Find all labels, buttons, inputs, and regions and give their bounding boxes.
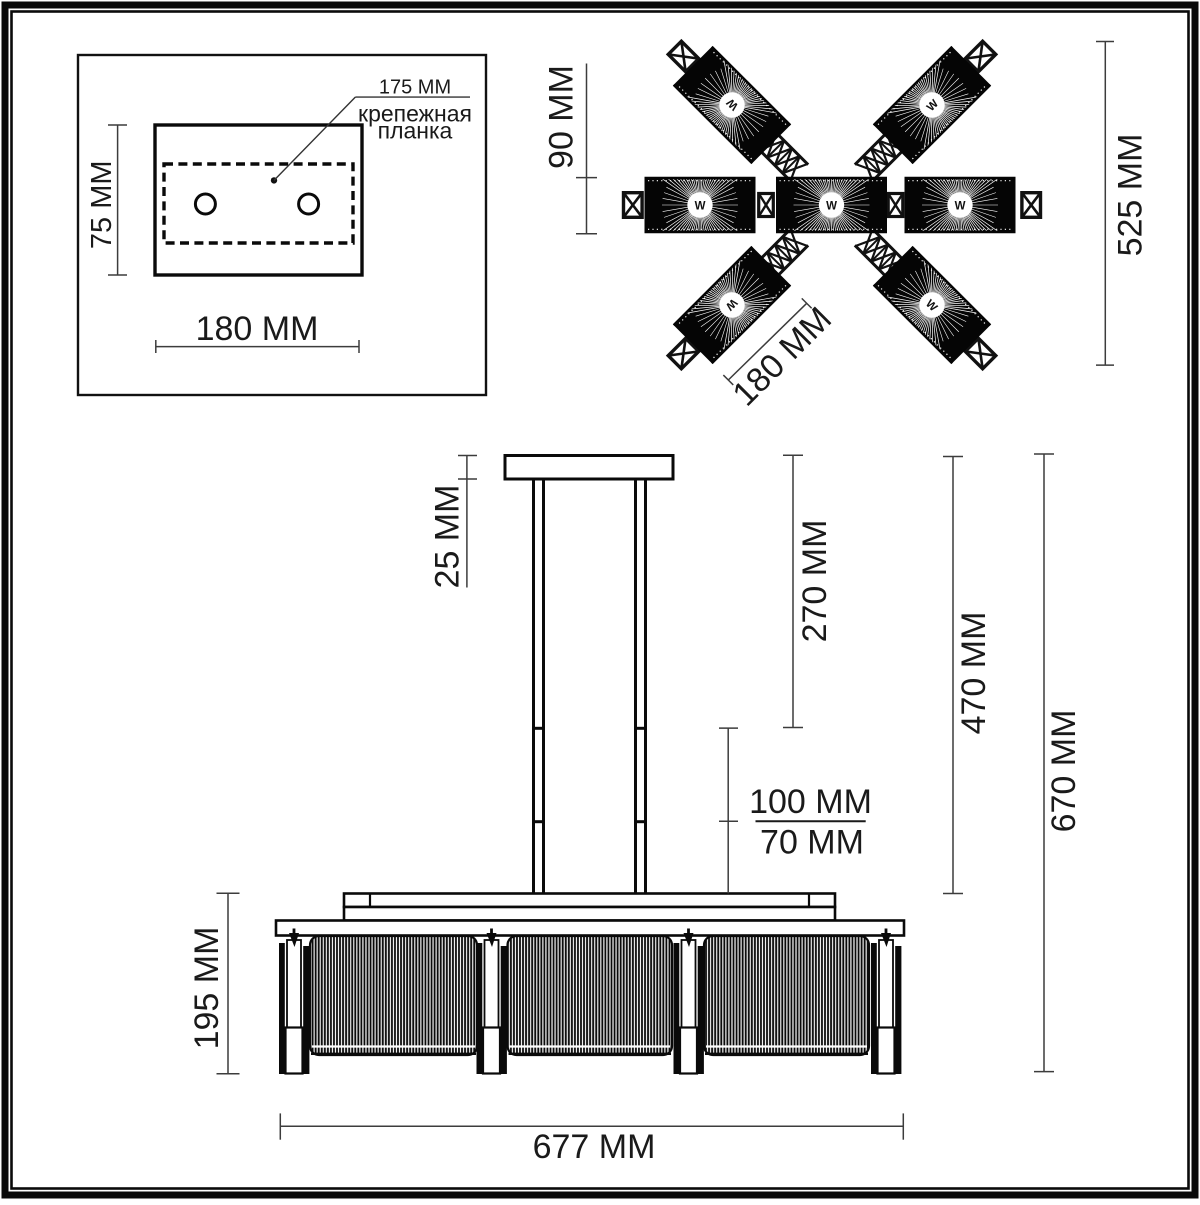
svg-text:195 ММ: 195 ММ	[188, 927, 226, 1050]
svg-text:525 ММ: 525 ММ	[1112, 134, 1150, 257]
svg-text:180 ММ: 180 ММ	[196, 310, 319, 348]
svg-text:270 ММ: 270 ММ	[796, 520, 834, 643]
svg-text:70 ММ: 70 ММ	[760, 824, 864, 862]
svg-text:470 ММ: 470 ММ	[955, 612, 993, 735]
svg-text:90 ММ: 90 ММ	[543, 65, 581, 169]
svg-text:75 ММ: 75 ММ	[86, 160, 118, 249]
svg-text:100 ММ: 100 ММ	[749, 783, 872, 821]
svg-text:175 ММ: 175 ММ	[379, 77, 451, 99]
svg-text:677 ММ: 677 ММ	[533, 1128, 656, 1166]
svg-text:25 ММ: 25 ММ	[429, 485, 467, 589]
svg-text:670 ММ: 670 ММ	[1045, 710, 1083, 833]
svg-text:планка: планка	[378, 118, 453, 144]
